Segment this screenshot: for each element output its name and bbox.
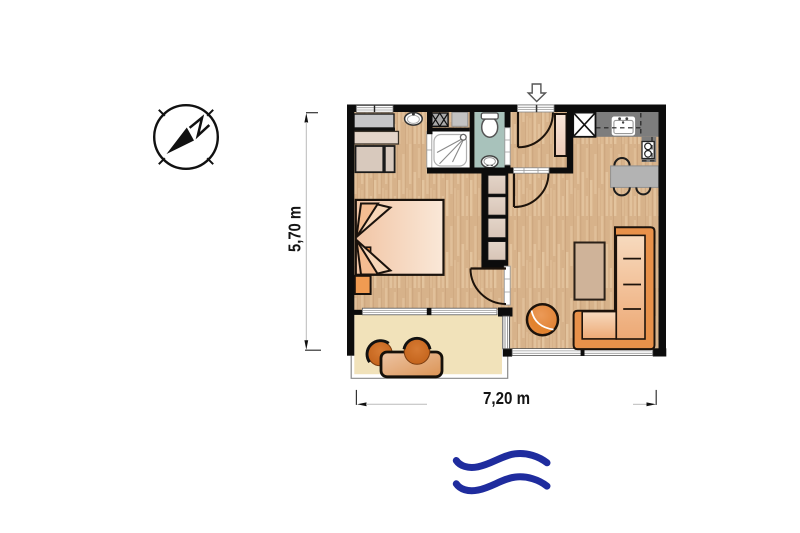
svg-text:7,20 m: 7,20 m	[483, 388, 530, 408]
svg-text:5,70 m: 5,70 m	[285, 206, 305, 252]
